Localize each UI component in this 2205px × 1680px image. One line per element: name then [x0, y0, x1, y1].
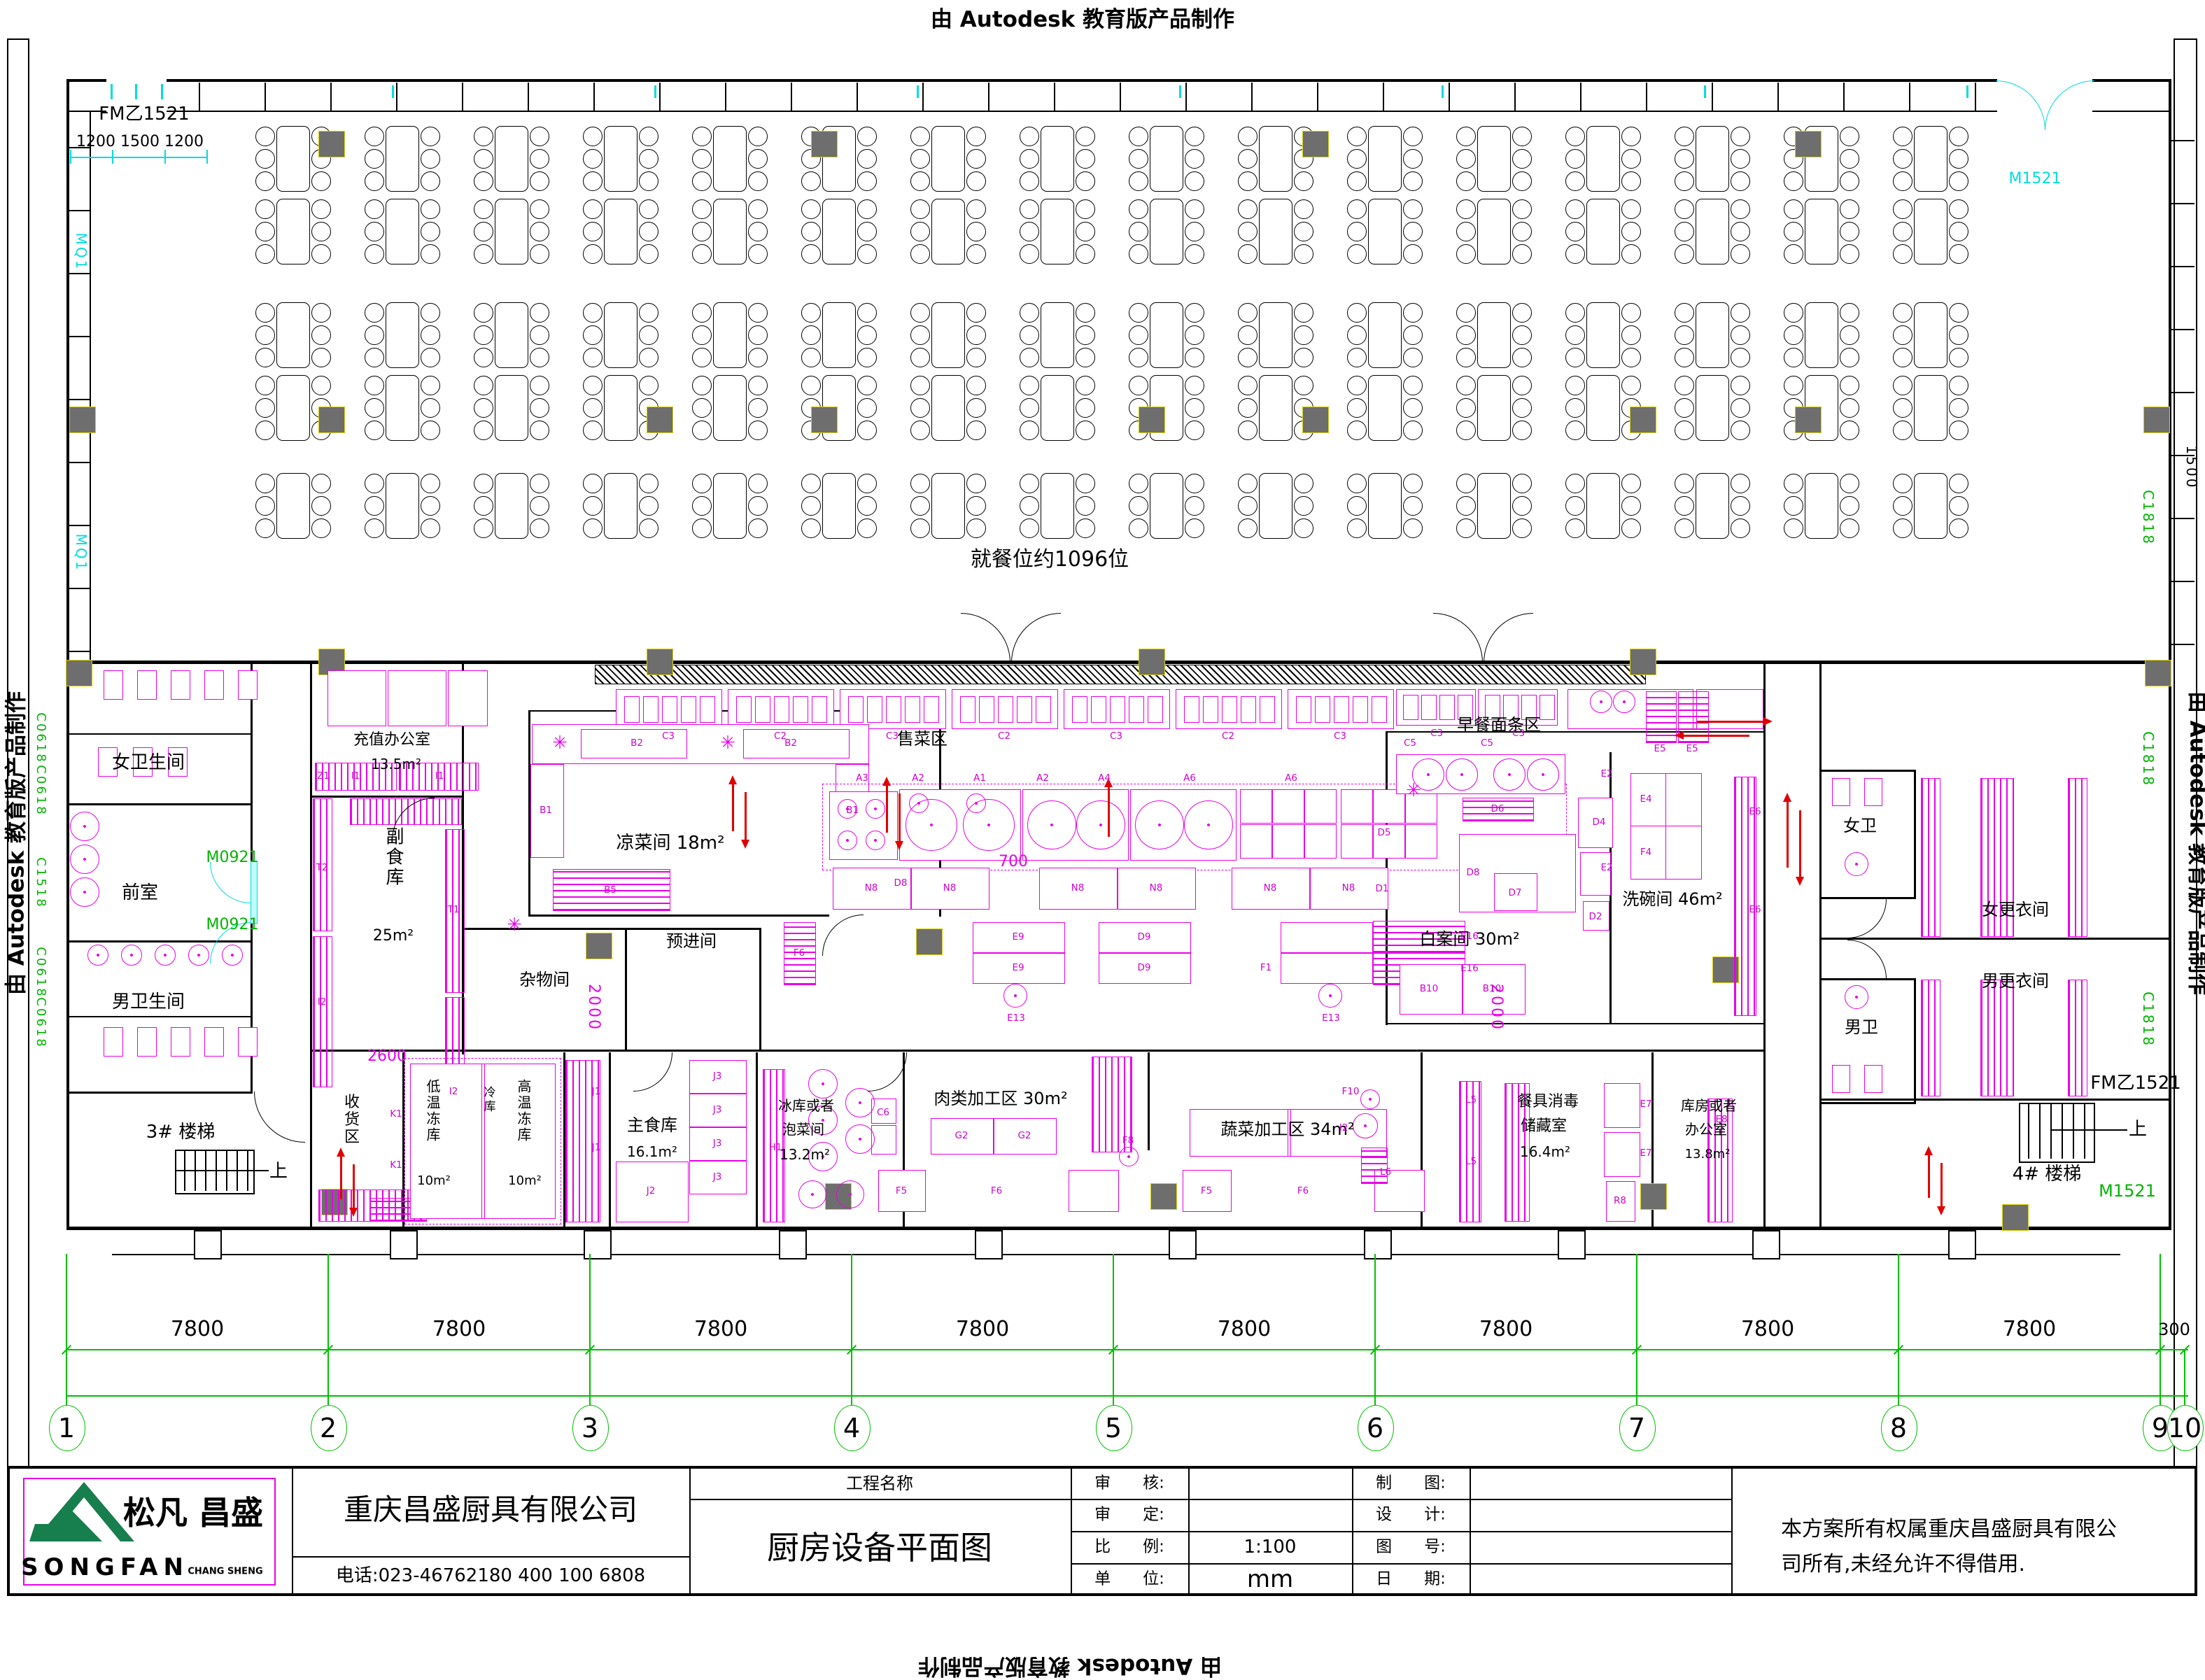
dining-table — [1368, 375, 1402, 441]
room-label: 冷库 — [482, 1086, 494, 1114]
dining-chair — [1294, 474, 1313, 493]
equipment-circle — [845, 1124, 875, 1154]
dining-chair — [530, 199, 549, 219]
equipment-tag: J3 — [713, 1138, 722, 1149]
dining-chair — [1565, 222, 1585, 241]
equipment-tag: A6 — [1183, 772, 1196, 784]
equipment — [700, 696, 715, 723]
equipment-tag: D7 — [1509, 887, 1522, 898]
dining-chair — [530, 303, 549, 323]
dining-chair — [1294, 518, 1313, 538]
equipment-tag: F5 — [896, 1185, 907, 1197]
wall — [1819, 770, 1916, 772]
dining-chair — [910, 518, 930, 538]
grid-line — [1898, 1254, 1899, 1405]
dining-table — [604, 302, 637, 368]
dining-chair — [1185, 496, 1204, 516]
dining-chair — [421, 199, 440, 219]
dining-chair — [1294, 348, 1313, 367]
structural-column — [1151, 1184, 1176, 1209]
dining-table — [1259, 126, 1292, 192]
equipment — [1403, 695, 1418, 720]
dining-chair — [1456, 171, 1476, 191]
dining-chair — [1020, 171, 1039, 191]
dining-chair — [1238, 376, 1258, 395]
project-label: 工程名称 — [846, 1475, 913, 1492]
dining-chair — [1731, 376, 1750, 395]
dining-table — [604, 375, 637, 441]
equipment — [155, 945, 176, 966]
window-mullion — [2171, 581, 2195, 582]
dining-chair — [1238, 222, 1258, 241]
dining-chair — [1347, 421, 1367, 440]
dining-chair — [1949, 398, 1968, 418]
dining-chair — [1565, 348, 1585, 367]
dining-chair — [748, 421, 768, 440]
equipment-tag: A4 — [1098, 772, 1111, 784]
dining-table — [1041, 126, 1074, 192]
titleblock-line — [292, 1556, 689, 1558]
equipment-tag: N8 — [1071, 882, 1085, 894]
equipment-tag: C5 — [1404, 737, 1416, 749]
equipment — [137, 670, 157, 700]
dining-chair — [966, 199, 986, 219]
dining-chair — [1893, 222, 1912, 241]
flow-arrow — [1697, 721, 1763, 723]
dining-chair — [1784, 303, 1803, 323]
wall — [66, 733, 253, 735]
dining-chair — [748, 325, 768, 345]
equipment-tag: J3 — [713, 1104, 722, 1115]
equipment — [1281, 953, 1373, 984]
equipment — [1222, 696, 1237, 723]
equipment — [1272, 824, 1304, 859]
wall — [1148, 1052, 1150, 1150]
equipment-tag: E7 — [1640, 1148, 1651, 1159]
dining-chair — [1675, 199, 1694, 219]
dining-chair — [474, 303, 493, 323]
dining-chair — [583, 244, 603, 264]
dining-chair — [857, 348, 877, 367]
dining-chair — [1020, 303, 1039, 323]
equipment-circle — [866, 831, 885, 850]
cyan-door — [251, 861, 258, 924]
door-window-label: C0618 — [34, 947, 47, 998]
grid-bubble-number: 2 — [320, 1415, 337, 1441]
dining-chair — [748, 149, 768, 169]
window-mullion — [1120, 83, 1121, 111]
flow-arrow-head — [337, 1148, 345, 1157]
dining-chair — [801, 199, 821, 219]
room-label: 男卫 — [1845, 1019, 1878, 1036]
dining-chair — [801, 474, 821, 493]
dining-chair — [1621, 496, 1641, 516]
equipment — [1845, 985, 1868, 1009]
dining-chair — [692, 127, 712, 146]
dining-table — [713, 126, 747, 192]
dining-chair — [255, 303, 275, 323]
dining-chair — [1238, 518, 1258, 538]
dining-chair — [1784, 518, 1803, 538]
flow-arrow — [340, 1156, 342, 1199]
dining-table — [1041, 473, 1074, 539]
dining-chair — [639, 127, 658, 146]
wall — [1386, 1023, 1766, 1024]
dining-chair — [421, 222, 440, 241]
equipment — [137, 1027, 157, 1057]
equipment — [848, 696, 864, 723]
dining-chair — [801, 376, 821, 395]
dining-chair — [1675, 398, 1694, 418]
equipment-tag: E9 — [1012, 931, 1024, 943]
equipment-circle — [1076, 800, 1125, 849]
dining-chair — [1403, 199, 1423, 219]
equipment — [70, 812, 99, 841]
dining-chair — [365, 222, 384, 241]
dining-chair — [1621, 474, 1641, 493]
flow-arrow — [353, 1164, 355, 1208]
window-mullion — [68, 462, 90, 463]
dining-chair — [1840, 376, 1859, 395]
dining-chair — [1347, 325, 1367, 345]
logo-en: SONGFAN — [21, 1555, 189, 1579]
grid-line — [1113, 1254, 1114, 1405]
dining-table — [1150, 199, 1183, 264]
structural-column — [1796, 407, 1821, 432]
dining-table — [1586, 302, 1620, 368]
window-mullion — [988, 83, 989, 111]
dining-chair — [1840, 171, 1859, 191]
grid-line — [1374, 1254, 1376, 1405]
window-mullion — [2171, 266, 2195, 267]
dining-chair — [966, 496, 986, 516]
dining-chair — [1129, 518, 1148, 538]
wall — [7, 38, 29, 40]
dining-chair — [1185, 348, 1204, 367]
equipment — [171, 670, 190, 700]
dining-chair — [1675, 244, 1694, 264]
dining-table — [276, 375, 310, 441]
dining-chair — [1675, 325, 1694, 345]
dining-chair — [1129, 303, 1148, 323]
dining-chair — [639, 222, 658, 241]
grid-bubble-number: 6 — [1367, 1415, 1383, 1441]
dining-table — [276, 199, 310, 264]
cyan-window-tick — [1442, 85, 1444, 98]
dining-chair — [1893, 149, 1912, 169]
dining-chair — [1893, 518, 1912, 538]
dining-chair — [1456, 376, 1476, 395]
door-window-label: C0618 — [34, 997, 47, 1048]
dining-chair — [1020, 149, 1039, 169]
dining-chair — [801, 348, 821, 367]
titleblock-line — [292, 1466, 293, 1596]
dining-chair — [1512, 222, 1532, 241]
dining-chair — [530, 325, 549, 345]
equipment-tag: C2 — [998, 730, 1010, 742]
dining-chair — [1675, 376, 1694, 395]
wall — [66, 111, 2171, 112]
equipment — [1832, 1065, 1850, 1093]
dining-chair — [1129, 199, 1148, 219]
dining-chair — [474, 199, 493, 219]
equipment-tag: E13 — [1322, 1012, 1340, 1024]
dining-chair — [748, 496, 768, 516]
dining-chair — [1893, 325, 1912, 345]
door-arc — [254, 1092, 305, 1143]
dining-chair — [1076, 149, 1095, 169]
room-label: 3# 楼梯 — [146, 1123, 216, 1141]
equipment-tag: L5 — [1465, 1094, 1477, 1106]
equipment-tag: E16 — [1460, 963, 1479, 974]
dining-chair — [1675, 496, 1694, 516]
equipment — [0, 812, 35, 855]
room-label: 蔬菜加工区 34m² — [1220, 1121, 1354, 1138]
equipment-tag: N8 — [1150, 882, 1163, 894]
dining-chair — [1347, 348, 1367, 367]
dining-chair — [1893, 376, 1912, 395]
dining-chair — [857, 199, 877, 219]
dining-chair — [530, 518, 549, 538]
equipment-tag: B5 — [604, 884, 617, 896]
dining-chair — [692, 222, 712, 241]
dining-chair — [1347, 149, 1367, 169]
dining-chair — [1185, 222, 1204, 241]
equipment-circle — [838, 831, 857, 850]
dining-chair — [311, 474, 331, 493]
equipment-tag: F6 — [794, 947, 805, 959]
equipment — [1373, 789, 1405, 824]
dining-chair — [1185, 149, 1204, 169]
equipment — [1260, 696, 1275, 723]
room-label: 13.8m² — [1685, 1148, 1731, 1161]
dining-chair — [1784, 376, 1803, 395]
equipment — [1864, 1065, 1882, 1093]
flow-arrow-head — [895, 841, 903, 850]
dining-chair — [1076, 127, 1095, 146]
dining-chair — [1949, 244, 1968, 264]
dining-chair — [801, 496, 821, 516]
dining-table — [276, 302, 310, 368]
dining-chair — [1456, 398, 1476, 418]
dining-table — [1914, 302, 1947, 368]
titleblock-border — [7, 1466, 2197, 1469]
flow-arrow — [1787, 801, 1789, 868]
equipment-tag: J1 — [592, 1086, 601, 1097]
window-mullion — [68, 588, 90, 589]
equipment — [1017, 696, 1032, 723]
structural-column — [1303, 407, 1328, 432]
equipment — [1439, 695, 1455, 720]
dining-chair — [1949, 325, 1968, 345]
dining-chair — [1949, 149, 1968, 169]
flow-arrow-head — [728, 775, 737, 784]
door-arc-cyan — [210, 862, 251, 903]
dining-chair — [692, 496, 712, 516]
equipment-tag: J3 — [713, 1071, 722, 1082]
dining-chair — [1238, 325, 1258, 345]
dining-chair — [1076, 474, 1095, 493]
cyan-window-tick — [1966, 85, 1968, 98]
door-window-label: 1200 1500 1200 — [76, 134, 204, 150]
dim-line — [66, 1349, 2188, 1350]
dining-chair — [1185, 199, 1204, 219]
dining-chair — [1185, 171, 1204, 191]
dining-chair — [692, 348, 712, 367]
equipment-tag: A6 — [1285, 772, 1297, 784]
equipment-tag: C2 — [1222, 730, 1234, 742]
dining-chair — [966, 149, 986, 169]
flow-arrow — [1928, 1155, 1930, 1198]
dining-chair — [639, 496, 658, 516]
room-label: 上 — [269, 1162, 288, 1180]
dining-chair — [1949, 496, 1968, 516]
structural-column — [917, 929, 942, 954]
dining-chair — [421, 325, 440, 345]
span-dim: 7800 — [1218, 1319, 1271, 1340]
dining-chair — [1347, 303, 1367, 323]
dining-chair — [1512, 149, 1532, 169]
dim-label: 2000 — [586, 984, 601, 1031]
equipment-tag: E16 — [1460, 931, 1479, 942]
dining-table — [822, 302, 856, 368]
dining-chair — [365, 303, 384, 323]
dining-chair — [311, 496, 331, 516]
window-mullion — [1909, 83, 1910, 111]
dining-chair — [474, 348, 493, 367]
dining-table — [1696, 126, 1729, 192]
equipment — [1646, 691, 1677, 743]
dining-chair — [365, 474, 384, 493]
dining-chair — [1731, 518, 1750, 538]
structural-column — [66, 661, 92, 686]
dining-chair — [365, 199, 384, 219]
equipment — [327, 670, 386, 726]
dining-chair — [365, 127, 384, 146]
room-label: 洗碗间 46m² — [1622, 891, 1722, 908]
stair-tread — [2062, 1103, 2063, 1159]
equipment-tag: F4 — [1640, 847, 1651, 858]
dining-chair — [857, 222, 877, 241]
room-label: 前室 — [122, 884, 158, 902]
dining-chair — [1076, 199, 1095, 219]
equipment-circle — [1360, 1089, 1380, 1109]
dining-chair — [1621, 325, 1641, 345]
equipment-tag: T1 — [448, 904, 460, 915]
fan-icon: ✳ — [507, 915, 522, 936]
equipment-tag: D8 — [894, 877, 908, 889]
dim-label: 2600 — [367, 1049, 407, 1064]
grid-line — [589, 1254, 591, 1405]
equipment — [1148, 696, 1163, 723]
dining-chair — [1403, 222, 1423, 241]
dining-table — [1259, 302, 1292, 368]
equipment — [1334, 696, 1349, 723]
window-mullion — [2171, 518, 2195, 519]
dining-chair — [1731, 171, 1750, 191]
titleblock-line — [689, 1466, 691, 1596]
equipment — [1315, 696, 1330, 723]
wall — [2174, 38, 2197, 40]
window-mullion — [1251, 83, 1253, 111]
dining-chair — [1949, 127, 1968, 146]
dining-chair — [474, 127, 493, 146]
room-label: 4# 楼梯 — [2013, 1165, 2082, 1183]
dining-table — [1586, 473, 1620, 539]
dining-chair — [1238, 421, 1258, 440]
dining-chair — [1238, 171, 1258, 191]
equipment — [0, 855, 31, 877]
dining-chair — [1565, 496, 1585, 516]
grid-bubble-number: 1 — [58, 1415, 75, 1441]
dining-chair — [421, 398, 440, 418]
span-dim: 7800 — [1479, 1319, 1533, 1340]
structural-column — [647, 649, 672, 675]
dining-chair — [1238, 398, 1258, 418]
equipment — [2068, 778, 2087, 937]
dining-chair — [1020, 348, 1039, 367]
window-mullion — [2171, 392, 2195, 393]
span-dim: 300 — [2158, 1321, 2190, 1338]
equipment — [1372, 696, 1387, 723]
dining-chair — [421, 496, 440, 516]
dining-table — [386, 375, 419, 441]
dining-table — [386, 126, 419, 192]
equipment — [1665, 773, 1702, 827]
door-arc — [1847, 899, 1887, 938]
company-name: 重庆昌盛厨具有限公司 — [344, 1495, 637, 1525]
equipment — [313, 936, 332, 1087]
dining-chair — [1840, 421, 1859, 440]
equipment — [1272, 789, 1304, 824]
equipment-tag: R8 — [1614, 1195, 1626, 1206]
equipment — [1110, 696, 1125, 723]
dining-chair — [474, 171, 493, 191]
dining-chair — [1347, 127, 1367, 146]
grid-bubble-number: 3 — [582, 1415, 598, 1441]
dining-chair — [748, 199, 768, 219]
dining-chair — [692, 149, 712, 169]
dining-chair — [1840, 348, 1859, 367]
dining-table — [495, 473, 528, 539]
dim-line — [66, 1395, 2188, 1397]
dining-chair — [1949, 348, 1968, 367]
span-dim: 7800 — [2003, 1319, 2056, 1340]
dining-chair — [1840, 222, 1859, 241]
equipment — [1665, 826, 1702, 880]
cyan-window-tick — [1704, 85, 1706, 98]
dining-table — [386, 199, 419, 264]
flow-arrow-head — [741, 840, 749, 849]
dining-chair — [530, 348, 549, 367]
window-mullion — [1383, 83, 1384, 111]
flow-arrow-head — [1783, 793, 1791, 802]
dining-chair — [910, 398, 930, 418]
dining-chair — [910, 421, 930, 440]
dining-chair — [857, 518, 877, 538]
dining-table — [1805, 302, 1838, 368]
equipment-tag: D2 — [1589, 911, 1602, 922]
equipment-tag: E4 — [1640, 793, 1651, 805]
field-label: 设 计: — [1376, 1507, 1446, 1523]
equipment — [1296, 696, 1311, 723]
equipment — [565, 1060, 600, 1222]
dining-chair — [1347, 474, 1367, 493]
window-mullion — [528, 83, 529, 111]
equipment-tag: E9 — [1012, 962, 1024, 973]
equipment-tag: C5 — [1481, 737, 1493, 749]
structural-column — [1630, 407, 1656, 432]
